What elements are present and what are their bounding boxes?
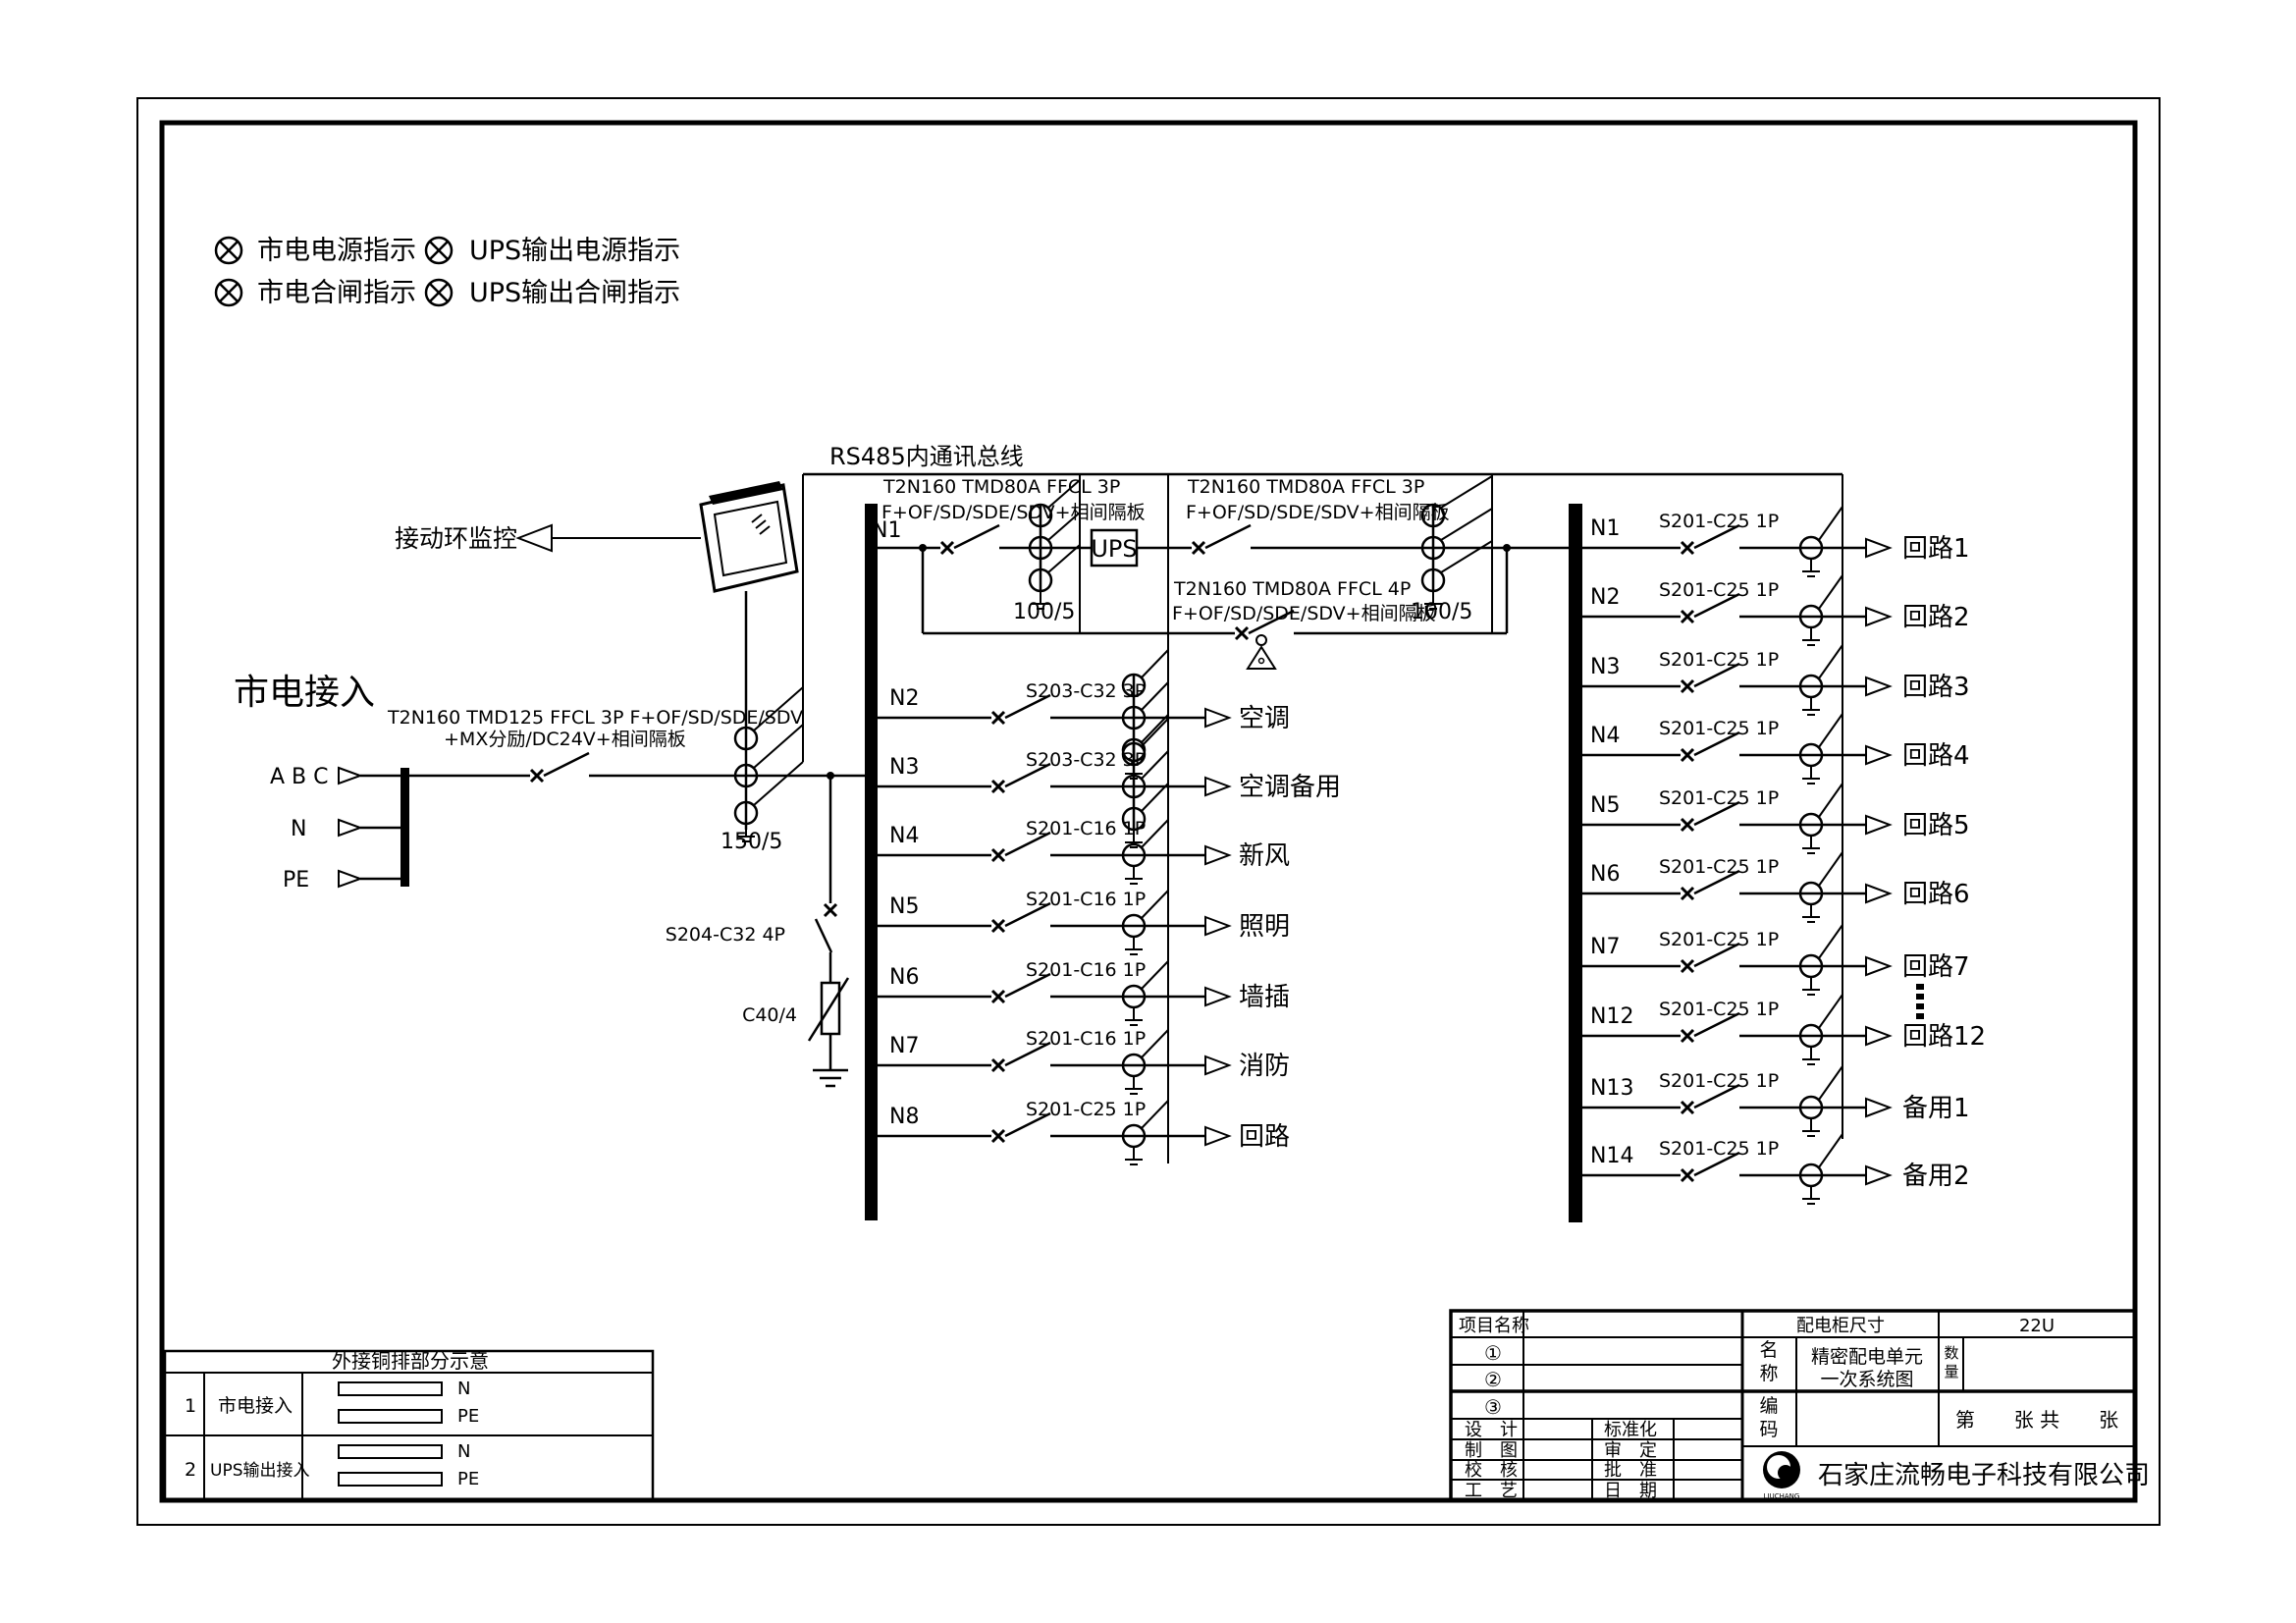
busbar-row-no: 2 xyxy=(185,1459,196,1481)
standardization-label: 标准化 xyxy=(1604,1420,1657,1440)
terminal-arrow-icon xyxy=(339,768,360,784)
breaker-spec-label: S201-C25 1P xyxy=(1659,787,1779,809)
busbar-label: N xyxy=(457,1441,470,1462)
ellipsis-dots xyxy=(1916,984,1924,990)
branch-id-label: N5 xyxy=(889,894,919,919)
load-label: 新风 xyxy=(1239,841,1290,871)
breaker-spec-label: S201-C25 1P xyxy=(1659,649,1779,671)
wire xyxy=(1819,852,1842,886)
junction-dot xyxy=(919,544,927,552)
circled-number: ② xyxy=(1484,1368,1502,1391)
ups-branch-row: N3S201-C25 1P回路3 xyxy=(1582,645,1970,715)
ups-input-breaker-label: T2N160 TMD80A FFCL 3P xyxy=(882,476,1120,498)
company-name: 石家庄流畅电子科技有限公司 xyxy=(1818,1461,2150,1490)
busbar-row-no: 1 xyxy=(185,1395,196,1417)
ups-busbar xyxy=(1569,504,1582,1222)
wire xyxy=(809,978,848,1041)
load-label: 回路1 xyxy=(1902,534,1970,564)
approve-label: 批 准 xyxy=(1604,1460,1657,1481)
load-arrow-icon xyxy=(1866,885,1890,902)
wire xyxy=(1142,719,1168,746)
load-label: 备用2 xyxy=(1902,1162,1970,1191)
mains-branch-row: N4S201-C16 1P新风 xyxy=(878,818,1290,884)
ups-branch-row: N13S201-C25 1P备用1 xyxy=(1582,1066,1970,1136)
load-label: 回路3 xyxy=(1902,673,1970,702)
breaker-spec-label: S201-C25 1P xyxy=(1659,999,1779,1020)
load-label: 回路 xyxy=(1239,1122,1290,1152)
load-label: 回路12 xyxy=(1902,1022,1986,1052)
load-arrow-icon xyxy=(1866,1027,1890,1045)
design-label: 设 计 xyxy=(1465,1420,1518,1440)
logo-caption: LIUCHANG xyxy=(1764,1492,1800,1500)
load-arrow-icon xyxy=(1866,1099,1890,1116)
branch-id-label: N6 xyxy=(1590,862,1620,887)
ups-output-breaker-label: T2N160 TMD80A FFCL 3P xyxy=(1187,476,1424,498)
mains-branch-row: N7S201-C16 1P消防 xyxy=(878,1028,1290,1094)
wire xyxy=(1441,541,1492,572)
legend-item-label: UPS输出电源指示 xyxy=(469,236,680,266)
neutral-pe-bar xyxy=(400,768,409,887)
monitoring-arrow-icon xyxy=(518,525,552,551)
branch-id-label: N1 xyxy=(1590,516,1620,541)
pe-terminal-label: PE xyxy=(283,868,309,893)
bypass-breaker-label: F+OF/SD/SDE/SDV+相间隔板 xyxy=(1172,603,1436,624)
branch-id-label: N14 xyxy=(1590,1144,1633,1168)
load-label: 回路4 xyxy=(1902,741,1970,771)
branch-id-label: N8 xyxy=(889,1105,919,1129)
copper-bar-icon xyxy=(339,1382,442,1395)
wire xyxy=(544,753,589,776)
branch-id-label: N5 xyxy=(1590,793,1620,818)
load-arrow-icon xyxy=(1866,1166,1890,1184)
ellipsis-dots xyxy=(1916,1003,1924,1009)
load-label: 消防 xyxy=(1239,1052,1290,1081)
terminal-arrow-icon xyxy=(339,820,360,836)
ups-branch-row: N6S201-C25 1P回路6 xyxy=(1582,852,1970,922)
wire xyxy=(1819,714,1842,747)
frame-inner xyxy=(162,123,2135,1500)
branch-id-label: N4 xyxy=(1590,724,1620,748)
legend-item-label: 市电合闸指示 xyxy=(257,278,416,308)
ups-branch-row: N4S201-C25 1P回路4 xyxy=(1582,714,1970,784)
breaker-spec-label: S201-C25 1P xyxy=(1659,1138,1779,1160)
legend-item-label: UPS输出合闸指示 xyxy=(469,278,680,308)
load-arrow-icon xyxy=(1205,846,1229,864)
project-name-label: 项目名称 xyxy=(1459,1316,1529,1336)
load-arrow-icon xyxy=(1866,816,1890,834)
load-label: 回路2 xyxy=(1902,603,1970,632)
incoming-ct-ratio: 150/5 xyxy=(721,830,782,854)
interlock-icon xyxy=(1256,635,1266,645)
branch-id-label: N4 xyxy=(889,824,919,848)
load-arrow-icon xyxy=(1866,746,1890,764)
branch-rows-layer: N2S203-C32 3P空调N3S203-C32 3P空调备用N4S201-C… xyxy=(878,507,1986,1440)
ups-output-breaker-label: F+OF/SD/SDE/SDV+相间隔板 xyxy=(1186,502,1450,523)
branch-id-label: N3 xyxy=(1590,655,1620,679)
wire xyxy=(1819,784,1842,817)
load-arrow-icon xyxy=(1205,988,1229,1005)
ellipsis-dots xyxy=(1916,1013,1924,1019)
copper-bar-icon xyxy=(339,1473,442,1486)
surge-arrester-label: C40/4 xyxy=(742,1004,797,1026)
name-label: 名称 xyxy=(1759,1339,1778,1384)
load-arrow-icon xyxy=(1205,917,1229,935)
breaker-spec-label: S201-C25 1P xyxy=(1659,929,1779,950)
branch-id-label: N6 xyxy=(889,965,919,990)
wire xyxy=(1819,575,1842,609)
load-arrow-icon xyxy=(1205,778,1229,795)
ups-input-ct-ratio: 100/5 xyxy=(1013,600,1075,624)
wire xyxy=(954,525,999,548)
electrical-single-line-diagram: 市电电源指示 UPS输出电源指示 市电合闸指示 UPS输出合闸指示 接动环监控 … xyxy=(0,0,2296,1623)
busbar-row-name: UPS输出接入 xyxy=(210,1461,310,1481)
mains-branch-row: N8S201-C25 1P回路 xyxy=(878,1099,1290,1164)
ups-branch-row: N1S201-C25 1P回路1 xyxy=(1582,507,1970,576)
branch-id-label: N13 xyxy=(1590,1076,1633,1101)
breaker-spec-label: S201-C25 1P xyxy=(1659,511,1779,532)
wire xyxy=(816,919,831,952)
circled-number: ③ xyxy=(1484,1395,1502,1419)
load-label: 墙插 xyxy=(1239,983,1290,1012)
wire xyxy=(754,725,803,768)
wire xyxy=(1142,650,1168,677)
busbar-table-title: 外接铜排部分示意 xyxy=(332,1349,489,1373)
phase-terminal-label: A B C xyxy=(270,765,329,789)
circled-number: ① xyxy=(1484,1341,1502,1365)
load-label: 回路6 xyxy=(1902,880,1970,909)
ellipsis-dots xyxy=(1916,994,1924,1000)
mains-branch-row: N5S201-C16 1P照明 xyxy=(878,889,1290,954)
monitoring-label: 接动环监控 xyxy=(395,524,517,553)
load-arrow-icon xyxy=(1866,957,1890,975)
load-arrow-icon xyxy=(1866,677,1890,695)
wire xyxy=(1819,507,1842,540)
check-label: 校 核 xyxy=(1465,1460,1518,1481)
branch-id-label: N2 xyxy=(889,686,919,711)
load-label: 回路5 xyxy=(1902,811,1970,840)
ups-box-label: UPS xyxy=(1091,535,1137,563)
neutral-terminal-label: N xyxy=(291,817,306,841)
qty-label: 数量 xyxy=(1944,1344,1958,1380)
load-arrow-icon xyxy=(1205,1056,1229,1074)
breaker-spec-label: S201-C25 1P xyxy=(1659,856,1779,878)
load-arrow-icon xyxy=(1866,539,1890,557)
wire xyxy=(1819,1066,1842,1100)
load-label: 空调备用 xyxy=(1239,773,1341,802)
branch-id-label: N3 xyxy=(889,755,919,780)
incoming-breaker-label: +MX分励/DC24V+相间隔板 xyxy=(444,729,686,750)
drawing-name-line: 一次系统图 xyxy=(1820,1369,1913,1390)
mains-branch-row: N6S201-C16 1P墙插 xyxy=(878,959,1290,1025)
wire xyxy=(1819,1134,1842,1167)
sheet-number-label: 第 张 共 张 xyxy=(1955,1408,2118,1432)
bypass-breaker-label: T2N160 TMD80A FFCL 4P xyxy=(1173,578,1411,600)
breaker-spec-label: S201-C25 1P xyxy=(1659,1070,1779,1092)
busbar-label: N xyxy=(457,1379,470,1399)
mains-busbar xyxy=(865,504,878,1220)
ups-branch-row: N14S201-C25 1P备用2 xyxy=(1582,1134,1970,1204)
ups-input-breaker-label: F+OF/SD/SDE/SDV+相间隔板 xyxy=(881,502,1146,523)
rs485-bus-label: RS485内通讯总线 xyxy=(829,443,1024,470)
process-label: 工 艺 xyxy=(1465,1481,1518,1501)
draft-label: 制 图 xyxy=(1465,1440,1518,1461)
ups-branch-row: N7S201-C25 1P回路7 xyxy=(1582,925,1970,995)
wiring-layer xyxy=(137,98,2160,1525)
load-label: 备用1 xyxy=(1902,1094,1970,1123)
branch-id-label: N2 xyxy=(1590,585,1620,610)
drawing-name-line: 精密配电单元 xyxy=(1811,1346,1923,1368)
busbar-row-name: 市电接入 xyxy=(218,1395,293,1417)
cabinet-size-label: 配电柜尺寸 xyxy=(1796,1316,1885,1336)
wire xyxy=(754,762,803,805)
incoming-title: 市电接入 xyxy=(234,673,375,713)
junction-dot xyxy=(1503,544,1511,552)
company-logo xyxy=(1778,1465,1793,1481)
breaker-spec-label: S201-C25 1P xyxy=(1659,718,1779,739)
date-label: 日 期 xyxy=(1604,1481,1657,1501)
busbar-label: PE xyxy=(457,1406,479,1427)
copper-bar-icon xyxy=(339,1445,442,1458)
load-arrow-icon xyxy=(1205,709,1229,727)
terminal-arrow-icon xyxy=(339,871,360,887)
incoming-breaker-label: T2N160 TMD125 FFCL 3P F+OF/SD/SDE/SDV xyxy=(387,707,803,729)
wire xyxy=(1205,525,1251,548)
wire xyxy=(1819,995,1842,1028)
load-label: 回路7 xyxy=(1902,952,1970,982)
ups-branch-row: N12S201-C25 1P回路12 xyxy=(1582,995,1986,1064)
ups-branch-row: N5S201-C25 1P回路5 xyxy=(1582,784,1970,853)
wire xyxy=(1819,645,1842,678)
branch-id-label: N12 xyxy=(1590,1004,1633,1029)
junction-dot xyxy=(827,772,834,780)
branch-id-label: N7 xyxy=(889,1034,919,1058)
branch-id-label: N7 xyxy=(1590,935,1620,959)
wire xyxy=(1819,925,1842,958)
load-arrow-icon xyxy=(1866,608,1890,625)
code-label: 编码 xyxy=(1759,1395,1778,1440)
breaker-spec-label: S201-C25 1P xyxy=(1659,579,1779,601)
load-arrow-icon xyxy=(1205,1127,1229,1145)
review-label: 审 定 xyxy=(1604,1440,1657,1461)
busbar-label: PE xyxy=(457,1469,479,1489)
copper-bar-icon xyxy=(339,1410,442,1423)
legend-item-label: 市电电源指示 xyxy=(257,236,416,266)
cabinet-size-value: 22U xyxy=(2019,1316,2055,1336)
load-label: 照明 xyxy=(1239,912,1290,942)
load-label: 空调 xyxy=(1239,704,1290,733)
surge-breaker-label: S204-C32 4P xyxy=(666,924,785,946)
ups-branch-row: N2S201-C25 1P回路2 xyxy=(1582,575,1970,645)
